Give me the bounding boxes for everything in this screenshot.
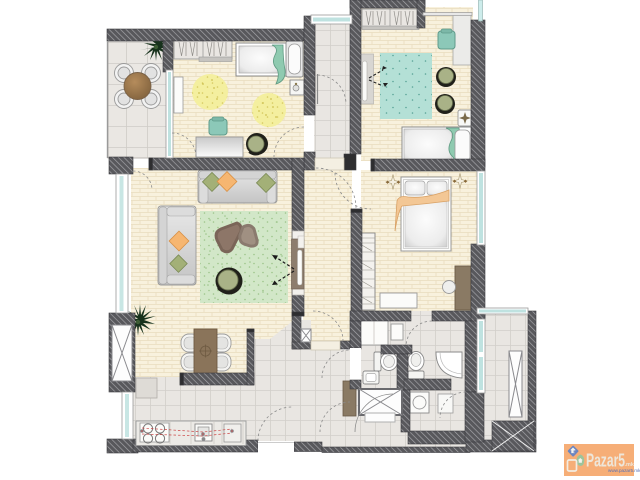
svg-text:www.pazar5.mk: www.pazar5.mk: [608, 468, 640, 473]
